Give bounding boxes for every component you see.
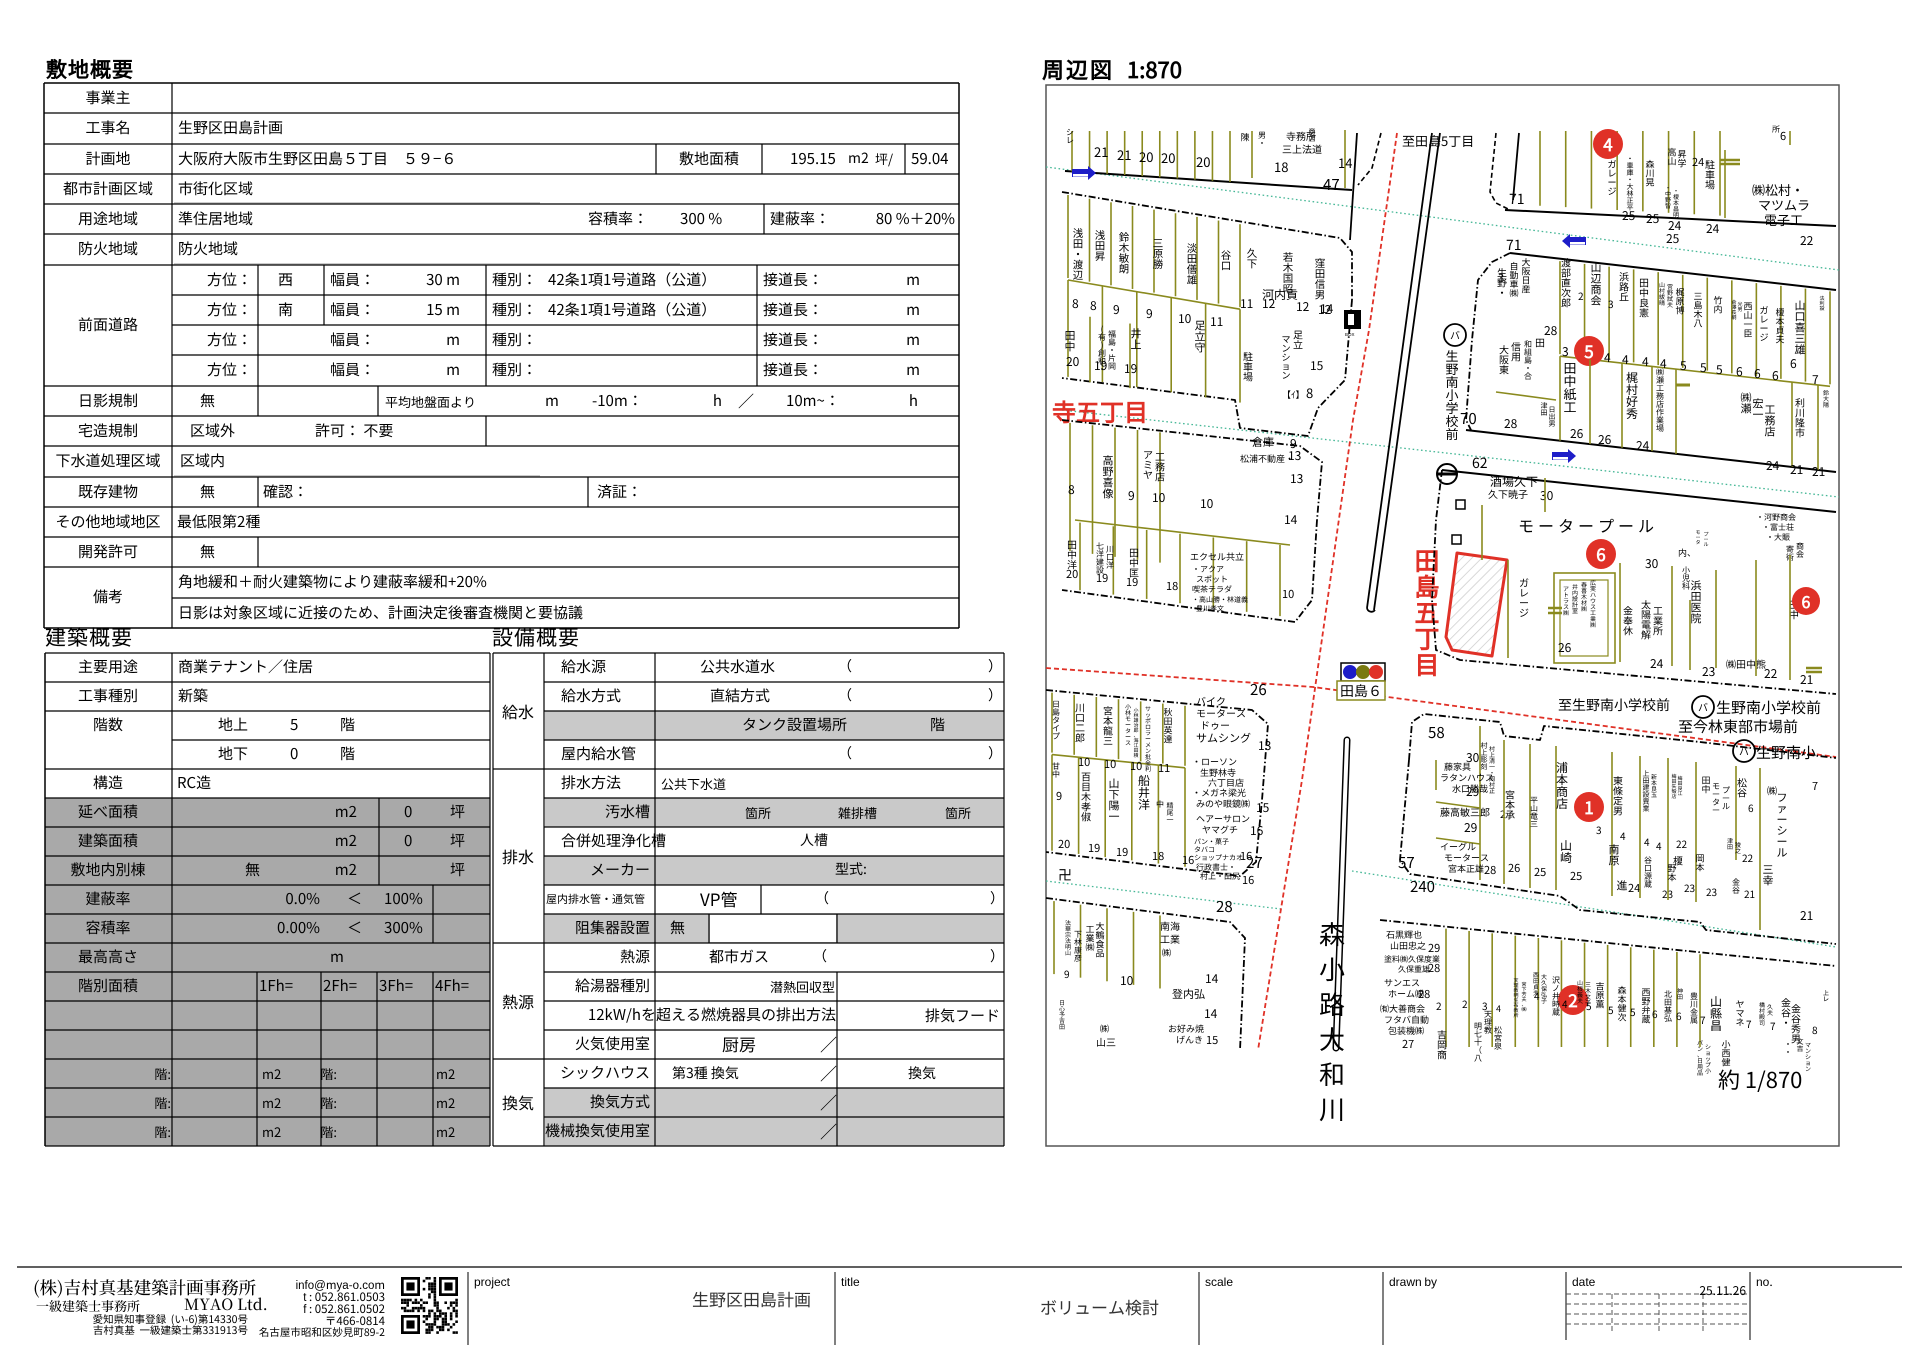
svg-text:久下暁子: 久下暁子 — [1488, 486, 1528, 501]
svg-text:18: 18 — [1152, 848, 1164, 864]
svg-text:13: 13 — [1290, 470, 1303, 487]
svg-text:㈱: ㈱ — [1767, 783, 1777, 798]
svg-text:梅田良江: 梅田良江 — [1677, 775, 1682, 797]
svg-text:北田基弘: 北田基弘 — [1664, 989, 1672, 1024]
svg-text:4: 4 — [1604, 349, 1611, 366]
svg-text:21: 21 — [1800, 671, 1813, 688]
svg-text:21: 21 — [1094, 142, 1108, 161]
svg-text:田: 田 — [1535, 335, 1545, 350]
svg-text:ガレージ: ガレージ — [1607, 158, 1616, 198]
svg-text:・大賑: ・大賑 — [1766, 532, 1790, 543]
svg-text:ヤマネ: ヤマネ — [1735, 998, 1744, 1029]
svg-text:げんき: げんき — [1176, 1033, 1203, 1046]
svg-text:8: 8 — [1306, 383, 1313, 402]
svg-text:8: 8 — [1812, 1022, 1818, 1037]
svg-text:駐車場: 駐車場 — [1705, 157, 1715, 192]
svg-text:5: 5 — [1630, 1004, 1636, 1019]
svg-text:新本良玉: 新本良玉 — [1651, 772, 1657, 799]
svg-text:至田島5丁目: 至田島5丁目 — [1402, 131, 1474, 150]
svg-text:5: 5 — [1584, 338, 1593, 363]
svg-text:松浦不動産・: 松浦不動産・ — [1240, 452, 1294, 465]
svg-text:16: 16 — [1182, 852, 1194, 868]
svg-text:津田: 津田 — [1727, 836, 1733, 851]
svg-text:森川晃: 森川晃 — [1645, 158, 1654, 189]
svg-text:16: 16 — [1242, 872, 1254, 888]
svg-text:47: 47 — [1323, 174, 1340, 195]
svg-text:26: 26 — [1558, 639, 1572, 656]
svg-text:明七十（八: 明七十（八 — [1474, 1021, 1482, 1064]
svg-text:宮本龍三: 宮本龍三 — [1103, 703, 1113, 748]
svg-text:宮野試夫: 宮野試夫 — [1667, 282, 1673, 309]
svg-text:29: 29 — [1466, 783, 1480, 800]
svg-text:陳: 陳 — [1240, 131, 1249, 144]
svg-text:みのや眼鏡㈱: みのや眼鏡㈱ — [1196, 797, 1250, 810]
svg-text:吉原薫: 吉原薫 — [1595, 980, 1604, 1011]
svg-text:日出男: 日出男 — [1549, 405, 1556, 429]
svg-text:金谷: 金谷 — [1732, 877, 1740, 896]
svg-text:24: 24 — [1692, 154, 1704, 170]
svg-text:村上・田尻: 村上・田尻 — [1200, 871, 1240, 882]
svg-text:田中: 田中 — [1065, 327, 1076, 354]
svg-text:井上: 井上 — [1131, 325, 1142, 352]
svg-text:中: 中 — [1156, 799, 1164, 810]
svg-text:7: 7 — [1812, 778, 1818, 794]
svg-text:浜路丘: 浜路丘 — [1619, 269, 1629, 304]
svg-text:・榎本昌明: ・榎本昌明 — [1673, 186, 1679, 219]
svg-text:ガレージ: ガレージ — [1759, 304, 1768, 344]
svg-text:19: 19 — [1124, 360, 1138, 377]
svg-text:法華宗法明山: 法華宗法明山 — [1065, 918, 1071, 957]
svg-text:13: 13 — [1258, 737, 1271, 754]
svg-text:6: 6 — [1736, 363, 1743, 380]
svg-text:9: 9 — [1064, 966, 1070, 981]
svg-text:70: 70 — [1460, 408, 1477, 429]
svg-text:久下: 久下 — [1247, 246, 1258, 272]
svg-text:神田: 神田 — [1677, 986, 1683, 1001]
svg-text:25: 25 — [1622, 207, 1636, 224]
svg-text:9: 9 — [1056, 788, 1062, 804]
svg-text:サッポロラーメン批全利: サッポロラーメン批全利 — [1145, 704, 1151, 773]
svg-text:3: 3 — [1498, 270, 1504, 286]
svg-text:東條定男: 東條定男 — [1613, 773, 1623, 818]
svg-text:16: 16 — [1250, 822, 1264, 839]
svg-text:・中野智: ・中野智 — [1665, 183, 1671, 210]
svg-text:三島木八: 三島木八 — [1693, 290, 1702, 330]
svg-text:下林康彦: 下林康彦 — [1074, 929, 1082, 964]
svg-text:野本: 野本 — [1667, 862, 1676, 884]
svg-text:6: 6 — [1652, 1006, 1658, 1021]
svg-text:5: 5 — [1700, 359, 1707, 376]
svg-text:3: 3 — [1596, 822, 1602, 837]
svg-text:240: 240 — [1410, 876, 1435, 897]
svg-text:文吉: 文吉 — [1797, 1037, 1804, 1054]
svg-text:マンション: マンション — [1805, 1040, 1811, 1073]
svg-text:西野弁蔵: 西野弁蔵 — [1641, 986, 1650, 1026]
svg-text:21: 21 — [1800, 907, 1813, 924]
svg-text:プール: プール — [1722, 785, 1730, 812]
svg-text:山田忠之: 山田忠之 — [1390, 939, 1426, 952]
svg-text:24: 24 — [1706, 220, 1720, 237]
svg-text:田中良憲: 田中良憲 — [1639, 275, 1649, 320]
svg-text:倉澤長嗣: 倉澤長嗣 — [1731, 299, 1736, 321]
svg-text:田島五丁目: 田島五丁目 — [1414, 542, 1439, 682]
svg-text:船井洋: 船井洋 — [1138, 772, 1150, 813]
svg-text:山縣昌: 山縣昌 — [1710, 993, 1722, 1034]
svg-text:10: 10 — [1078, 754, 1090, 770]
svg-text:6: 6 — [1790, 355, 1797, 372]
svg-text:20: 20 — [1139, 147, 1153, 166]
svg-text:進: 進 — [1617, 877, 1628, 893]
svg-text:3: 3 — [1608, 296, 1614, 311]
svg-text:6: 6 — [1780, 128, 1786, 144]
svg-text:10: 10 — [1130, 758, 1142, 774]
svg-text:榎本貞夫: 榎本貞夫 — [1775, 306, 1784, 346]
svg-text:小林モータース: 小林モータース — [1125, 702, 1131, 747]
svg-text:エクセル共立: エクセル共立 — [1190, 550, 1244, 563]
svg-text:豊川孝文: 豊川孝文 — [1196, 604, 1224, 614]
svg-text:広実ハウス工業㈱: 広実ハウス工業㈱ — [1590, 578, 1596, 629]
svg-text:大阪東: 大阪東 — [1499, 342, 1509, 377]
svg-text:11: 11 — [1210, 313, 1223, 330]
svg-text:19: 19 — [1088, 840, 1100, 856]
svg-text:シレ: シレ — [1066, 127, 1074, 146]
svg-text:至今林東部市場前: 至今林東部市場前 — [1678, 716, 1798, 737]
svg-text:信用: 信用 — [1511, 339, 1521, 364]
svg-text:河内貢: 河内貢 — [1262, 286, 1298, 303]
svg-text:ファーシール: ファーシール — [1777, 789, 1788, 860]
svg-text:30: 30 — [1466, 749, 1480, 766]
svg-text:橋村殿司: 橋村殿司 — [1759, 1000, 1765, 1027]
svg-text:工務店: 工務店 — [1155, 449, 1165, 484]
svg-text:28: 28 — [1418, 986, 1430, 1002]
svg-text:【ｲ】: 【ｲ】 — [1282, 388, 1305, 401]
svg-text:梶原博: 梶原博 — [1675, 286, 1684, 317]
svg-text:倉庫: 倉庫 — [1252, 434, 1274, 450]
svg-text:宮下芳夫、㈱: 宮下芳夫、㈱ — [1521, 981, 1526, 1013]
svg-text:ヤマグチ: ヤマグチ — [1202, 823, 1238, 836]
svg-text:9: 9 — [1128, 487, 1135, 504]
svg-text:23: 23 — [1706, 884, 1717, 899]
svg-text:利川隆市: 利川隆市 — [1795, 395, 1805, 440]
svg-text:18: 18 — [1274, 157, 1288, 176]
svg-text:日心予吉田: 日心予吉田 — [1059, 998, 1065, 1031]
svg-text:川口二郎: 川口二郎 — [1075, 700, 1085, 745]
svg-text:26: 26 — [1598, 431, 1612, 448]
svg-text:百目木孝俶: 百目木孝俶 — [1081, 769, 1091, 824]
svg-text:20: 20 — [1161, 148, 1175, 167]
svg-text:内、: 内、 — [1678, 546, 1696, 559]
svg-text:・車庫・大林正平: ・車庫・大林正平 — [1627, 154, 1634, 213]
svg-text:村上清一・岡村正: 村上清一・岡村正 — [1489, 744, 1495, 795]
svg-text:7: 7 — [1770, 1018, 1776, 1033]
svg-text:高野喜像: 高野喜像 — [1103, 452, 1114, 501]
svg-text:宮本正雄: 宮本正雄 — [1448, 862, 1484, 875]
svg-text:19: 19 — [1094, 357, 1108, 374]
svg-text:自動車㈱: 自動車㈱ — [1509, 260, 1518, 300]
svg-text:パン、日用品: パン、日用品 — [1697, 1038, 1703, 1077]
svg-text:10: 10 — [1282, 586, 1294, 602]
svg-text:豊川金属: 豊川金属 — [1690, 991, 1698, 1026]
svg-text:10: 10 — [1104, 756, 1116, 772]
svg-text:岡本: 岡本 — [1695, 852, 1704, 874]
svg-text:21: 21 — [1812, 463, 1825, 480]
svg-text:6: 6 — [1772, 367, 1779, 384]
svg-text:西山一臣: 西山一臣 — [1743, 300, 1752, 340]
svg-text:昇学: 昇学 — [1677, 148, 1686, 170]
svg-text:㈱瀬: ㈱瀬 — [1741, 389, 1752, 416]
svg-text:6: 6 — [1676, 1008, 1682, 1023]
svg-text:久保重雄: 久保重雄 — [1398, 964, 1430, 975]
svg-text:所: 所 — [1772, 124, 1780, 135]
svg-text:サムシング: サムシング — [1196, 730, 1251, 746]
svg-text:26: 26 — [1570, 425, 1584, 442]
svg-text:2: 2 — [1462, 996, 1468, 1011]
svg-text:狻之: 狻之 — [1735, 840, 1741, 855]
svg-text:バ: バ — [1739, 743, 1749, 758]
svg-text:25: 25 — [1666, 230, 1680, 247]
svg-text:モータープール: モータープール — [1518, 513, 1658, 537]
svg-text:8: 8 — [1068, 481, 1075, 498]
svg-text:山辺商会: 山辺商会 — [1591, 259, 1602, 308]
svg-text:浅田・渡辺: 浅田・渡辺 — [1073, 226, 1084, 283]
svg-text:2: 2 — [1436, 998, 1442, 1013]
svg-text:卍: 卍 — [1058, 865, 1072, 885]
svg-text:井内設計室: 井内設計室 — [1572, 582, 1578, 615]
svg-text:㈱田中熊: ㈱田中熊 — [1726, 656, 1766, 671]
svg-text:大久保弘子: 大久保弘子 — [1541, 972, 1547, 1005]
svg-text:森小路大和川: 森小路大和川 — [1319, 915, 1345, 1127]
svg-text:鈴木敏朗: 鈴木敏朗 — [1119, 230, 1130, 277]
svg-text:18: 18 — [1166, 578, 1178, 594]
svg-text:25: 25 — [1646, 210, 1660, 227]
svg-text:71: 71 — [1506, 235, 1522, 255]
svg-text:平山竜三: 平山竜三 — [1530, 795, 1538, 830]
svg-text:三原勝: 三原勝 — [1153, 236, 1164, 272]
svg-text:28: 28 — [1544, 322, 1558, 339]
svg-text:山村紱晴: 山村紱晴 — [1659, 280, 1665, 307]
svg-text:マンション: マンション — [1281, 333, 1290, 382]
svg-text:BOX: BOX — [1345, 332, 1355, 338]
svg-text:9: 9 — [1146, 305, 1153, 322]
svg-text:渡部直次郎: 渡部直次郎 — [1561, 255, 1571, 310]
svg-text:バ: バ — [1450, 327, 1460, 342]
svg-text:28: 28 — [1484, 862, 1496, 878]
svg-text:4: 4 — [1622, 351, 1629, 368]
svg-text:津田: 津田 — [1541, 401, 1548, 418]
svg-text:南原: 南原 — [1609, 841, 1620, 868]
svg-text:22: 22 — [1764, 665, 1778, 682]
svg-text:5: 5 — [1680, 357, 1687, 374]
svg-text:田島６: 田島６ — [1340, 681, 1382, 701]
svg-text:19: 19 — [1116, 844, 1128, 860]
svg-text:工業: 工業 — [1160, 931, 1180, 946]
svg-text:25: 25 — [1570, 868, 1582, 884]
svg-text:至生野南小学校前: 至生野南小学校前 — [1558, 695, 1670, 715]
svg-text:4: 4 — [1642, 353, 1649, 370]
svg-text:商会: 商会 — [1796, 541, 1804, 560]
svg-text:5: 5 — [1608, 1002, 1614, 1017]
svg-text:浜田医院: 浜田医院 — [1691, 577, 1702, 626]
svg-text:23: 23 — [1702, 663, 1715, 680]
svg-text:生野南小学校前: 生野南小学校前 — [1445, 346, 1458, 443]
svg-text:14: 14 — [1338, 153, 1352, 172]
svg-text:吉岡商: 吉岡商 — [1437, 1027, 1447, 1062]
svg-text:三幸: 三幸 — [1763, 861, 1774, 888]
svg-text:淡田僐雄: 淡田僐雄 — [1187, 241, 1198, 288]
svg-text:5: 5 — [1586, 998, 1592, 1013]
svg-text:沢ノ井時蔵: 沢ノ井時蔵 — [1552, 975, 1560, 1018]
svg-text:21: 21 — [1790, 461, 1803, 478]
svg-text:喫茶テラダ: 喫茶テラダ — [1192, 584, 1232, 595]
svg-text:9: 9 — [1113, 301, 1120, 318]
svg-text:山口喜三雄: 山口喜三雄 — [1795, 297, 1806, 357]
svg-text:6: 6 — [1802, 589, 1811, 613]
svg-text:13: 13 — [1288, 447, 1301, 464]
svg-text:5: 5 — [1716, 361, 1723, 378]
svg-text:田中紙工: 田中紙工 — [1563, 358, 1576, 416]
svg-text:谷口: 谷口 — [1221, 248, 1232, 274]
svg-text:20: 20 — [1058, 836, 1070, 852]
svg-text:天理教明生布教所: 天理教明生布教所 — [1513, 977, 1518, 1019]
svg-text:8: 8 — [1072, 295, 1079, 312]
svg-text:21: 21 — [1744, 886, 1755, 901]
svg-text:7: 7 — [1700, 1012, 1706, 1027]
svg-text:6: 6 — [1596, 541, 1606, 566]
svg-text:金谷・: 金谷・ — [1781, 995, 1791, 1030]
svg-text:男・: 男・ — [1258, 130, 1266, 149]
svg-text:バ: バ — [1698, 699, 1708, 714]
svg-text:プール: プール — [1703, 531, 1708, 548]
svg-text:58: 58 — [1428, 722, 1445, 743]
svg-text:春喜木材㈱: 春喜木材㈱ — [1581, 580, 1587, 613]
svg-text:甘中: 甘中 — [1052, 761, 1060, 780]
svg-text:生野南小学校前: 生野南小学校前 — [1716, 697, 1821, 718]
svg-text:足立: 足立 — [1293, 327, 1303, 352]
svg-text:10: 10 — [1120, 972, 1134, 989]
svg-text:25: 25 — [1534, 864, 1546, 880]
svg-text:㈱瀬工務店作業場: ㈱瀬工務店作業場 — [1656, 367, 1664, 434]
svg-text:14: 14 — [1320, 300, 1334, 317]
svg-text:22: 22 — [1800, 232, 1814, 249]
svg-text:14: 14 — [1205, 970, 1219, 987]
svg-text:15: 15 — [1206, 1032, 1218, 1048]
svg-text:19: 19 — [1096, 570, 1108, 586]
svg-text:4: 4 — [1656, 838, 1662, 853]
svg-text:7: 7 — [1746, 1016, 1752, 1031]
svg-text:窪田信男: 窪田信男 — [1315, 256, 1326, 303]
svg-text:小林雄治郎、海江田積: 小林雄治郎、海江田積 — [1133, 707, 1138, 759]
svg-text:上田建設異業: 上田建設異業 — [1643, 769, 1650, 814]
svg-text:10: 10 — [1152, 489, 1166, 506]
svg-text:4: 4 — [1644, 834, 1650, 849]
svg-text:精尾一: 精尾一 — [1167, 801, 1174, 825]
svg-text:鈴大陽: 鈴大陽 — [1823, 388, 1829, 409]
svg-text:21: 21 — [1117, 145, 1131, 164]
svg-text:・・: ・・ — [1784, 1039, 1792, 1058]
svg-text:20: 20 — [1196, 152, 1210, 171]
svg-text:村上彫刻: 村上彫刻 — [1481, 741, 1488, 772]
svg-text:15: 15 — [1256, 799, 1270, 816]
svg-text:足立守: 足立守 — [1195, 317, 1206, 355]
svg-text:4: 4 — [1496, 1002, 1501, 1015]
svg-text:金奉休: 金奉休 — [1623, 603, 1633, 638]
svg-text:法利設: 法利設 — [1819, 295, 1824, 312]
svg-text:29: 29 — [1464, 819, 1478, 836]
svg-text:4: 4 — [1534, 988, 1540, 1003]
svg-text:モータ: モータ — [1695, 529, 1700, 546]
svg-text:藤高敏三郎: 藤高敏三郎 — [1440, 804, 1490, 819]
svg-text:14: 14 — [1204, 1005, 1218, 1022]
svg-text:11: 11 — [1240, 295, 1253, 312]
svg-text:電子工: 電子工 — [1764, 210, 1803, 229]
svg-text:20: 20 — [1066, 353, 1080, 370]
svg-text:10: 10 — [1178, 310, 1192, 327]
svg-text:山根義夫: 山根義夫 — [1577, 978, 1583, 1005]
svg-text:山三: 山三 — [1096, 1034, 1116, 1049]
svg-text:福島・片岡: 福島・片岡 — [1108, 329, 1116, 372]
svg-text:8: 8 — [1090, 297, 1097, 314]
svg-text:光男: 光男 — [1737, 301, 1742, 313]
svg-text:駐車場: 駐車場 — [1243, 349, 1253, 384]
svg-text:㈱: ㈱ — [1162, 946, 1171, 959]
svg-text:浅田昇: 浅田昇 — [1095, 228, 1106, 264]
svg-text:28: 28 — [1216, 896, 1233, 917]
svg-text:26: 26 — [1250, 679, 1267, 700]
svg-text:26: 26 — [1508, 860, 1520, 876]
svg-text:27: 27 — [1402, 1036, 1414, 1052]
svg-text:24: 24 — [1628, 880, 1640, 896]
svg-text:商店: 商店 — [1309, 127, 1316, 144]
svg-text:秋田英達: 秋田英達 — [1163, 706, 1172, 746]
svg-text:竹内: 竹内 — [1713, 294, 1722, 316]
svg-text:モーター: モーター — [1712, 781, 1720, 816]
svg-text:1: 1 — [1584, 794, 1593, 819]
svg-text:大鶴食品: 大鶴食品 — [1095, 920, 1104, 960]
svg-text:ショップ小: ショップ小 — [1705, 1042, 1711, 1075]
svg-text:10: 10 — [1200, 495, 1214, 512]
svg-text:アミヤ: アミヤ — [1143, 447, 1153, 482]
svg-text:工業所: 工業所 — [1653, 603, 1663, 638]
svg-text:三上法道: 三上法道 — [1282, 141, 1322, 156]
svg-text:6: 6 — [1748, 800, 1754, 815]
svg-text:山下陽一: 山下陽一 — [1109, 775, 1120, 824]
svg-text:4: 4 — [1562, 996, 1568, 1011]
svg-text:大阪日産: 大阪日産 — [1521, 256, 1530, 296]
svg-text:30: 30 — [1645, 555, 1659, 572]
svg-text:天理教: 天理教 — [1484, 1009, 1492, 1036]
svg-text:71: 71 — [1509, 189, 1525, 209]
svg-text:28: 28 — [1504, 415, 1518, 432]
svg-text:アトラス㈱: アトラス㈱ — [1563, 584, 1569, 617]
svg-text:24: 24 — [1636, 437, 1650, 454]
svg-text:宏一: 宏一 — [1753, 395, 1764, 422]
svg-text:24: 24 — [1766, 457, 1780, 474]
svg-text:27: 27 — [1246, 852, 1263, 873]
svg-text:6: 6 — [1754, 365, 1761, 382]
svg-text:62: 62 — [1472, 453, 1488, 473]
svg-text:谷口源蔵: 谷口源蔵 — [1644, 855, 1652, 890]
svg-text:森本健次: 森本健次 — [1617, 984, 1626, 1024]
svg-text:浦本商店: 浦本商店 — [1556, 759, 1568, 812]
svg-text:松宮泉: 松宮泉 — [1494, 1025, 1502, 1052]
svg-text:梅田失殻店: 梅田失殻店 — [1671, 773, 1676, 800]
svg-text:19: 19 — [1126, 574, 1138, 590]
svg-text:太陽電解: 太陽電解 — [1641, 597, 1651, 642]
svg-text:工務店: 工務店 — [1765, 401, 1776, 439]
svg-text:川口洋: 川口洋 — [1106, 544, 1114, 571]
svg-text:ガレージ: ガレージ — [1519, 575, 1529, 620]
svg-text:30: 30 — [1540, 487, 1554, 504]
